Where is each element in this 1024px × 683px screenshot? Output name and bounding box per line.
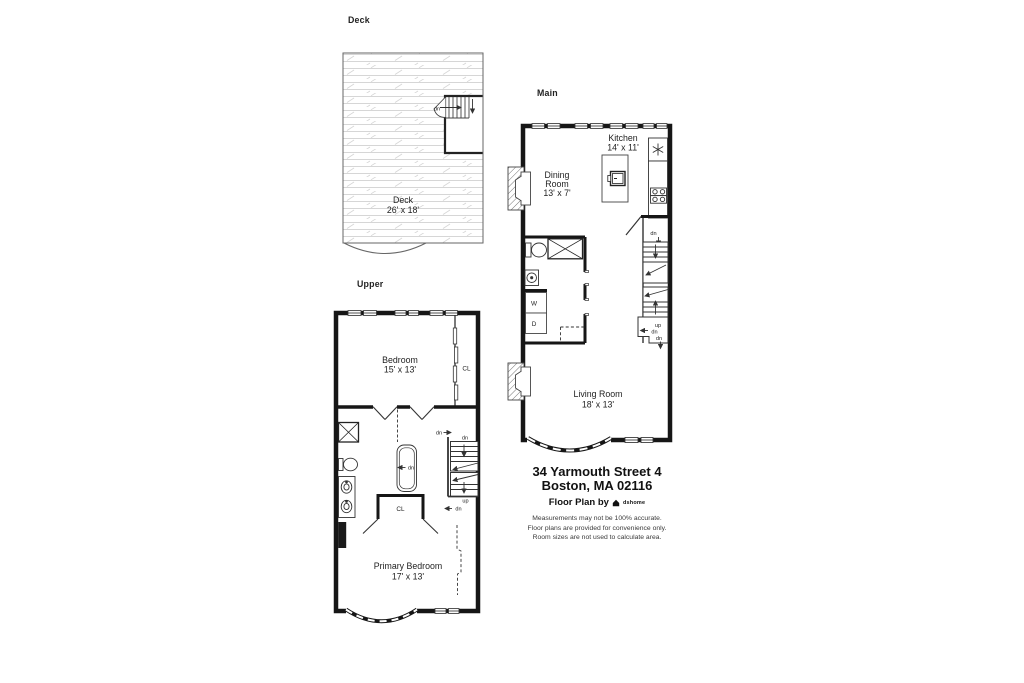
address-line-2: Boston, MA 02116 bbox=[497, 479, 697, 493]
deck-floor-title: Deck bbox=[348, 15, 370, 25]
upper-stair-dn-label: dn bbox=[462, 436, 468, 442]
brand-name: dshome bbox=[623, 500, 645, 506]
deck-bow-front bbox=[344, 243, 426, 254]
bath-sink-icon bbox=[525, 270, 539, 286]
main-floor-plan: dn up dn dn bbox=[501, 86, 681, 466]
dining-fireplace-icon bbox=[508, 167, 531, 210]
disclaimer: Measurements may not be 100% accurate. F… bbox=[497, 514, 697, 543]
main-landing-dn2-label: dn bbox=[656, 336, 662, 342]
living-fireplace-icon bbox=[508, 363, 531, 400]
main-top-windows bbox=[532, 124, 667, 129]
upper-shower-icon bbox=[339, 423, 359, 443]
deck-stair-dn-label: dn bbox=[434, 107, 440, 113]
credit-text: Floor Plan by bbox=[549, 497, 609, 508]
plan-footer: 34 Yarmouth Street 4 Boston, MA 02116 Fl… bbox=[497, 465, 697, 543]
main-landing-dn-label: dn bbox=[651, 330, 657, 336]
bedroom-label: Bedroom bbox=[382, 355, 418, 365]
kitchen-label: Kitchen bbox=[608, 133, 637, 143]
kitchen-dims: 14' x 11' bbox=[607, 143, 639, 153]
bedroom-dims: 15' x 13' bbox=[384, 365, 417, 375]
primary-bedroom-dims: 17' x 13' bbox=[392, 572, 425, 582]
bedroom-closet-label: CL bbox=[462, 366, 471, 373]
upper-bow-window bbox=[346, 608, 417, 621]
chimney-mass bbox=[338, 522, 346, 548]
disclaimer-line-2: Floor plans are provided for convenience… bbox=[497, 524, 697, 534]
floor-plan-page: Deck bbox=[0, 0, 1024, 683]
tub-dn-label: dn bbox=[408, 466, 414, 472]
living-room-dims: 18' x 13' bbox=[582, 400, 615, 410]
deck-stair-opening bbox=[445, 96, 483, 153]
refrigerator-icon bbox=[649, 138, 668, 161]
credit-row: Floor Plan by dshome bbox=[497, 497, 697, 508]
upper-floor-title: Upper bbox=[357, 279, 383, 289]
deck-room-label: Deck bbox=[393, 195, 414, 205]
address-line-1: 34 Yarmouth Street 4 bbox=[497, 465, 697, 479]
washer-label: W bbox=[531, 301, 538, 308]
double-vanity-icon bbox=[339, 477, 356, 518]
upper-stairs bbox=[448, 437, 478, 497]
shower-icon bbox=[548, 239, 583, 259]
primary-closet-label: CL bbox=[396, 506, 405, 513]
upper-floor-plan: CL Bedroom 15' x 13' bbox=[331, 306, 486, 641]
main-stairs-upper-flight bbox=[643, 242, 668, 283]
living-room-label: Living Room bbox=[574, 389, 623, 399]
upper-stair-up-label: up bbox=[462, 499, 468, 505]
stove-icon bbox=[651, 188, 667, 203]
upper-stair-dn2-label: dn bbox=[455, 507, 461, 513]
main-bow-window bbox=[527, 436, 611, 450]
deck-room-dims: 26' x 18' bbox=[387, 205, 420, 215]
main-stairs-lower-flight bbox=[643, 287, 668, 317]
dining-dims: 13' x 7' bbox=[543, 188, 571, 198]
toilet-icon bbox=[526, 243, 547, 257]
brand-house-icon bbox=[612, 499, 620, 507]
main-stair-dn-label: dn bbox=[650, 231, 656, 237]
upper-top-windows bbox=[348, 311, 458, 316]
main-landing-up-label: up bbox=[655, 323, 661, 329]
island-sink-icon bbox=[608, 172, 625, 186]
upper-hall-dn-label: dn bbox=[436, 431, 442, 437]
upper-toilet-icon bbox=[339, 458, 358, 471]
deck-floor-plan: dn Deck 26' x 18' bbox=[341, 51, 491, 263]
disclaimer-line-1: Measurements may not be 100% accurate. bbox=[497, 514, 697, 524]
primary-bedroom-label: Primary Bedroom bbox=[374, 561, 442, 571]
disclaimer-line-3: Room sizes are not used to calculate are… bbox=[497, 533, 697, 543]
dryer-label: D bbox=[532, 321, 537, 328]
